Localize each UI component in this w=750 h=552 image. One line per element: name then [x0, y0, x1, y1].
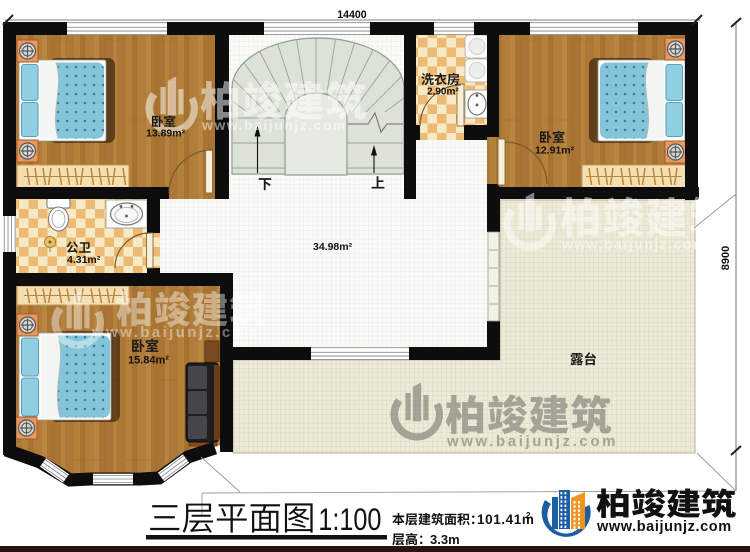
- svg-text:2.90m²: 2.90m²: [427, 87, 459, 98]
- svg-text:www.baijunjz.com: www.baijunjz.com: [201, 117, 347, 133]
- svg-text:8900: 8900: [720, 246, 732, 270]
- svg-text:4.31m²: 4.31m²: [67, 254, 101, 266]
- svg-text:1:100: 1:100: [318, 502, 381, 537]
- svg-text:15.84m²: 15.84m²: [128, 355, 169, 367]
- svg-text:14400: 14400: [337, 9, 366, 21]
- svg-text:www.baijunjz.com: www.baijunjz.com: [561, 236, 707, 252]
- svg-text:3.3m: 3.3m: [430, 532, 460, 547]
- svg-text:www.baijunjz.com: www.baijunjz.com: [596, 519, 732, 535]
- svg-text:www.baijunjz.com: www.baijunjz.com: [91, 324, 260, 341]
- svg-text:12.91m²: 12.91m²: [535, 145, 575, 157]
- svg-text:www.baijunjz.com: www.baijunjz.com: [446, 433, 618, 450]
- svg-text:34.98m²: 34.98m²: [313, 241, 353, 253]
- svg-text:2: 2: [526, 511, 531, 520]
- svg-text:13.89m²: 13.89m²: [146, 128, 186, 140]
